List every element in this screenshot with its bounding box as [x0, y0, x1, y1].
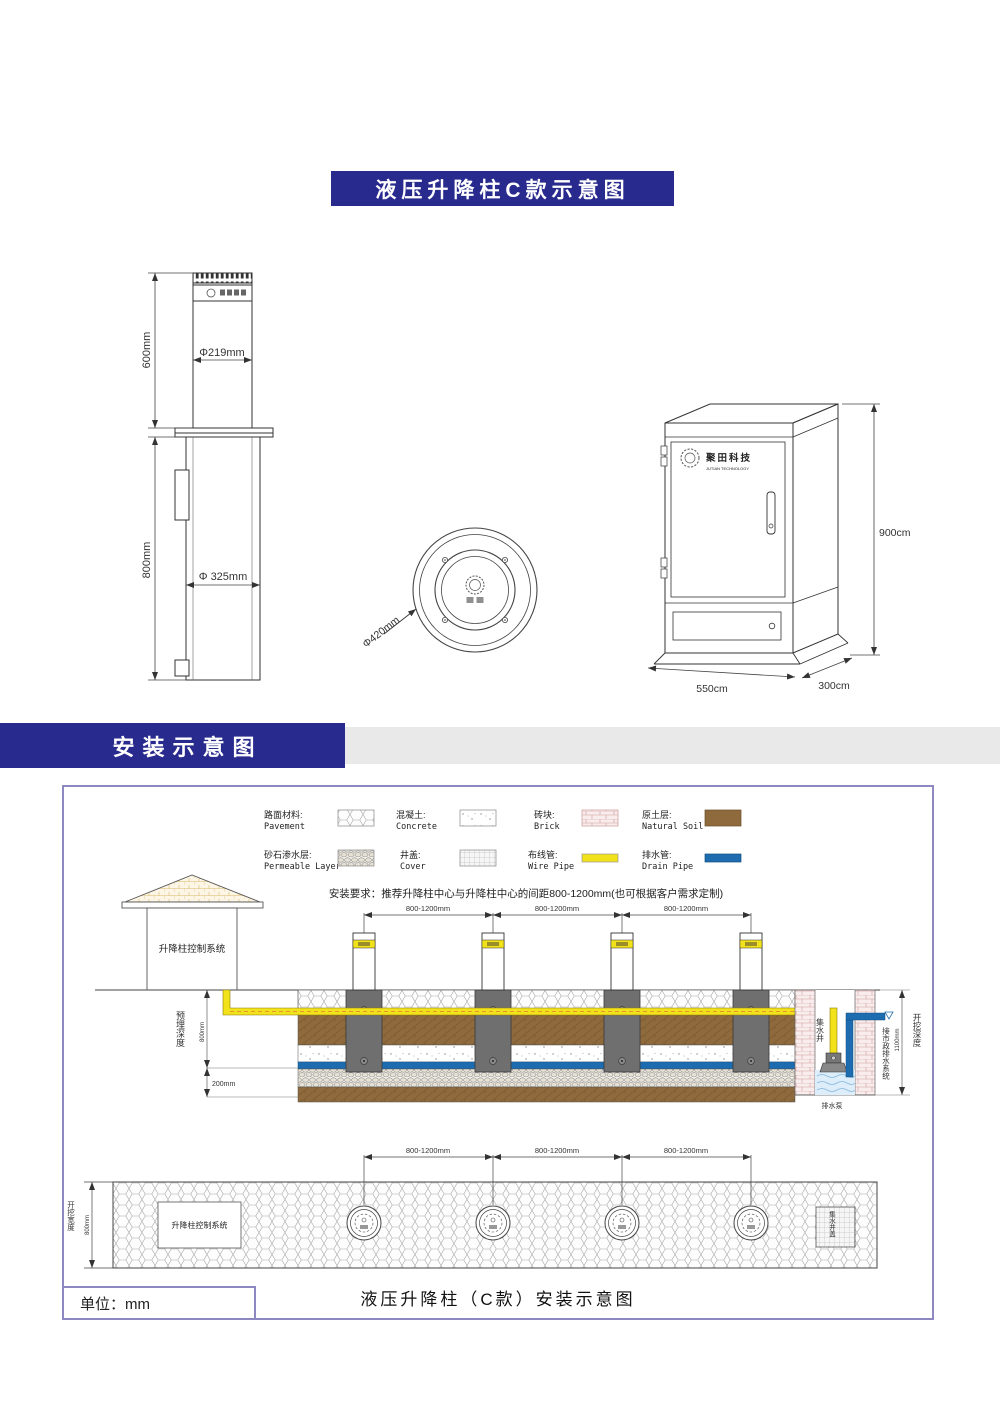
- plan-bollard: [347, 1206, 381, 1240]
- house-roof: [125, 875, 260, 902]
- keyhole-icon: [769, 524, 773, 528]
- pit: [475, 990, 511, 1072]
- dim-label-dia219: Φ219mm: [199, 347, 244, 359]
- dim-label-550cm: 550cm: [696, 683, 728, 695]
- cabinet-vent-panel: [673, 612, 781, 640]
- collection-well: 接市政排水系统 集水井: [795, 990, 893, 1095]
- page-title: 液压升降柱C款示意图: [375, 174, 629, 204]
- legend-en-drainpipe: Drain Pipe: [642, 862, 693, 872]
- legend-cn-wirepipe: 布线管:: [528, 849, 558, 860]
- legend-cn-cover: 井盖:: [400, 849, 421, 860]
- excavation-width-label: 开挖宽度: [66, 1201, 75, 1233]
- plan-bollard: [734, 1206, 768, 1240]
- legend: 路面材料: Pavement 混凝土: Concrete 砖块: Brick 原…: [264, 809, 741, 872]
- legend-swatch-drainpipe: [705, 854, 741, 862]
- dim-label-300cm: 300cm: [818, 680, 850, 692]
- control-cabinet: 聚田科技 JUTIAN TECHNOLOGY 900cm 550cm 300cm: [648, 404, 911, 695]
- page: 液压升降柱C款示意图: [0, 0, 1000, 1415]
- excavation-depth-label: 开挖深度: [912, 1013, 922, 1048]
- install-requirement-note: 安装要求：推荐升降柱中心与升降柱中心的间距800-1200mm(也可根据客户需求…: [329, 887, 723, 900]
- cross-section: 升降柱控制系统: [95, 875, 922, 1110]
- vent-lock-icon: [769, 623, 775, 629]
- bollard: [611, 933, 633, 990]
- bollard-top-view: Φ420mm: [360, 528, 537, 652]
- embed-depth-label: 预埋深度: [175, 1011, 185, 1048]
- bollard-side-view: 600mm Φ219mm 800mm Φ 325mm: [141, 273, 273, 680]
- pit: [346, 990, 382, 1072]
- legend-swatch-pavement: [338, 810, 374, 826]
- plan-spacing-label: 800-1200mm: [664, 1146, 708, 1155]
- bollard: [740, 933, 762, 990]
- well-wall-left: [795, 990, 815, 1095]
- legend-swatch-concrete: [460, 810, 496, 826]
- legend-en-pavement: Pavement: [264, 822, 305, 832]
- legend-cn-brick: 砖块:: [534, 809, 555, 820]
- unit-box: 单位：mm: [62, 1286, 256, 1320]
- legend-en-cover: Cover: [400, 862, 426, 872]
- legend-cn-pavement: 路面材料:: [264, 809, 303, 820]
- pit: [604, 990, 640, 1072]
- legend-cn-soil: 原土层:: [642, 809, 672, 820]
- install-banner-row: 安装示意图: [0, 723, 1000, 768]
- dim-label-800mm: 800mm: [141, 542, 153, 579]
- excavation-depth-value: 1100mm: [895, 1029, 901, 1052]
- bollards-row: [353, 933, 762, 990]
- wire-pipe-drop: [830, 1008, 837, 1055]
- plan-well-cover: [816, 1207, 855, 1247]
- legend-swatch-cover: [460, 850, 496, 866]
- install-banner: 安装示意图: [0, 723, 345, 768]
- plan-bollard: [476, 1206, 510, 1240]
- dim-label-dia420: Φ420mm: [360, 614, 402, 650]
- plan-control-room-label: 升降柱控制系统: [172, 1220, 228, 1230]
- embed-depth-value: 800mm: [200, 1022, 206, 1042]
- drain-arrow-icon: [885, 1012, 893, 1019]
- legend-cn-concrete: 混凝土:: [396, 809, 426, 820]
- dim-600mm: [148, 273, 193, 428]
- cabinet-logo-en: JUTIAN TECHNOLOGY: [706, 466, 749, 471]
- spacing-label: 800-1200mm: [535, 904, 579, 913]
- legend-en-brick: Brick: [534, 822, 560, 832]
- control-room-house: [122, 875, 263, 990]
- dim-label-600mm: 600mm: [141, 332, 153, 369]
- municipal-drain-label: 接市政排水系统: [881, 1026, 890, 1081]
- legend-en-wirepipe: Wire Pipe: [528, 862, 574, 872]
- legend-en-soil: Natural Soil: [642, 822, 703, 832]
- dim-label-dia325: Φ 325mm: [199, 571, 248, 583]
- spacing-dims: [364, 913, 751, 933]
- well-wall-right: [855, 990, 875, 1095]
- install-banner-title: 安装示意图: [112, 730, 262, 762]
- spacing-label: 800-1200mm: [406, 904, 450, 913]
- plan-spacing-label: 800-1200mm: [406, 1146, 450, 1155]
- cabinet-logo-cn: 聚田科技: [705, 452, 752, 464]
- banner-gray-strip: [345, 727, 1000, 764]
- title-banner: 液压升降柱C款示意图: [331, 171, 674, 206]
- cabinet-side-face: [793, 404, 838, 653]
- spacing-label: 800-1200mm: [664, 904, 708, 913]
- installation-panel: 路面材料: Pavement 混凝土: Concrete 砖块: Brick 原…: [62, 785, 934, 1320]
- legend-swatch-permeable: [338, 850, 374, 866]
- control-room-label: 升降柱控制系统: [159, 943, 226, 955]
- plan-spacing-label: 800-1200mm: [535, 1146, 579, 1155]
- legend-en-concrete: Concrete: [396, 822, 437, 832]
- drain-riser-pipe: [846, 1020, 853, 1077]
- bollard: [353, 933, 375, 990]
- legend-en-permeable: Permeable Layer: [264, 862, 341, 872]
- reflective-strip: [193, 273, 252, 283]
- legend-cn-permeable: 砂石渗水层:: [264, 849, 312, 860]
- dim-label-900cm: 900cm: [879, 527, 911, 539]
- bottom-fitting-box: [175, 660, 189, 676]
- pit: [733, 990, 769, 1072]
- installation-drawing: 路面材料: Pavement 混凝土: Concrete 砖块: Brick 原…: [64, 787, 932, 1318]
- pump-label: 排水泵: [822, 1101, 843, 1110]
- well-label: 集水井: [816, 1017, 825, 1043]
- unit-label: 单位：mm: [80, 1293, 150, 1314]
- legend-swatch-soil: [705, 810, 741, 826]
- plan-view: 升降柱控制系统: [66, 1146, 877, 1268]
- legend-swatch-brick: [582, 810, 618, 826]
- legend-cn-drainpipe: 排水管:: [642, 849, 672, 860]
- product-views-drawing: 600mm Φ219mm 800mm Φ 325mm: [0, 240, 1000, 710]
- dim-900cm: [842, 404, 880, 655]
- excavation-width-value: 800mm: [85, 1215, 91, 1235]
- base-layer-value: 200mm: [212, 1081, 236, 1088]
- conduit-box: [175, 470, 189, 520]
- plan-bollard: [605, 1206, 639, 1240]
- bollard: [482, 933, 504, 990]
- soil-layer-lower: [298, 1087, 795, 1102]
- excavation-depth-dim: [875, 990, 910, 1095]
- drain-outlet-pipe: [846, 1013, 885, 1020]
- legend-swatch-wirepipe: [582, 854, 618, 862]
